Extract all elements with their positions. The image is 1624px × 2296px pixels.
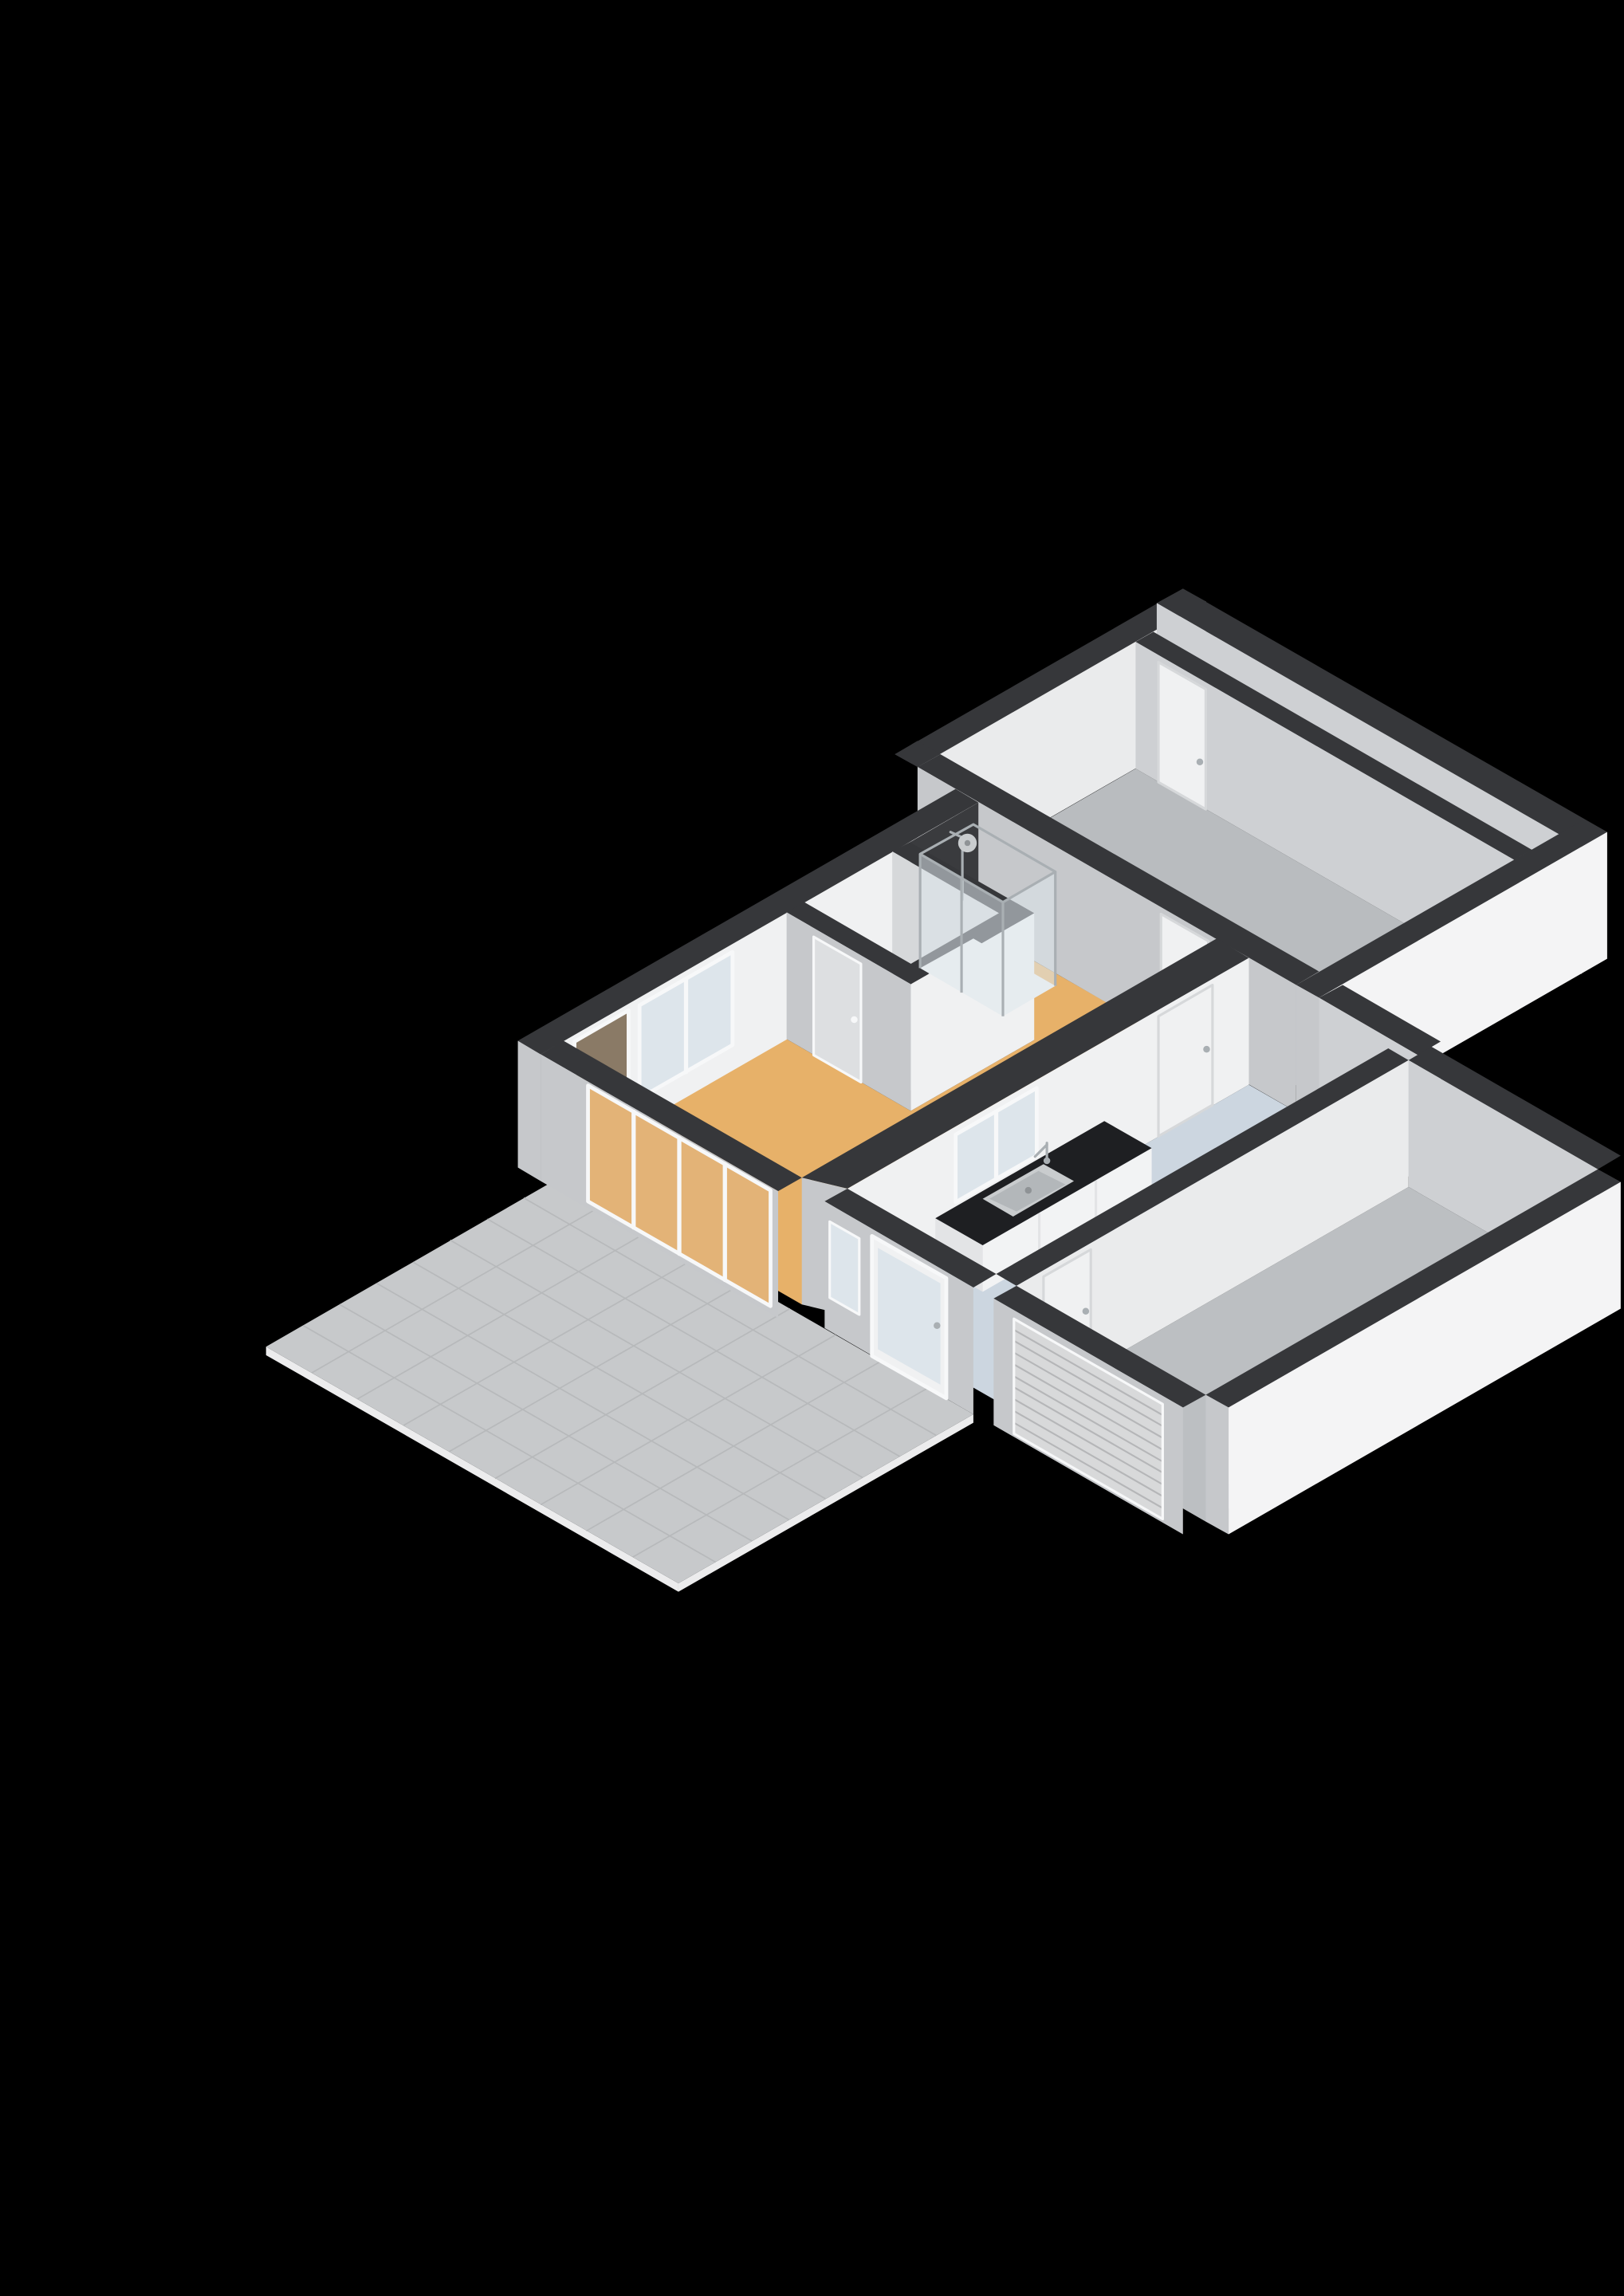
west-end-face [518, 1040, 541, 1181]
sink-drain [1025, 1187, 1032, 1193]
entrance-window [830, 1221, 859, 1315]
door-handle-icon [851, 1016, 857, 1023]
faucet-base [1044, 1158, 1050, 1164]
door-handle-icon [1083, 1307, 1089, 1314]
toilet-door [814, 937, 861, 1082]
door-handle-icon [1197, 758, 1203, 765]
shower-head-center [965, 840, 970, 846]
west-end-face [1205, 1395, 1229, 1535]
door-handle-icon [1203, 1046, 1209, 1052]
floorplan-3d-svg [0, 0, 1624, 2296]
floor-plan [266, 588, 1621, 1591]
floorplan-canvas [0, 0, 1624, 2296]
door-handle-icon [934, 1322, 940, 1328]
bedroom-door [1158, 662, 1205, 809]
